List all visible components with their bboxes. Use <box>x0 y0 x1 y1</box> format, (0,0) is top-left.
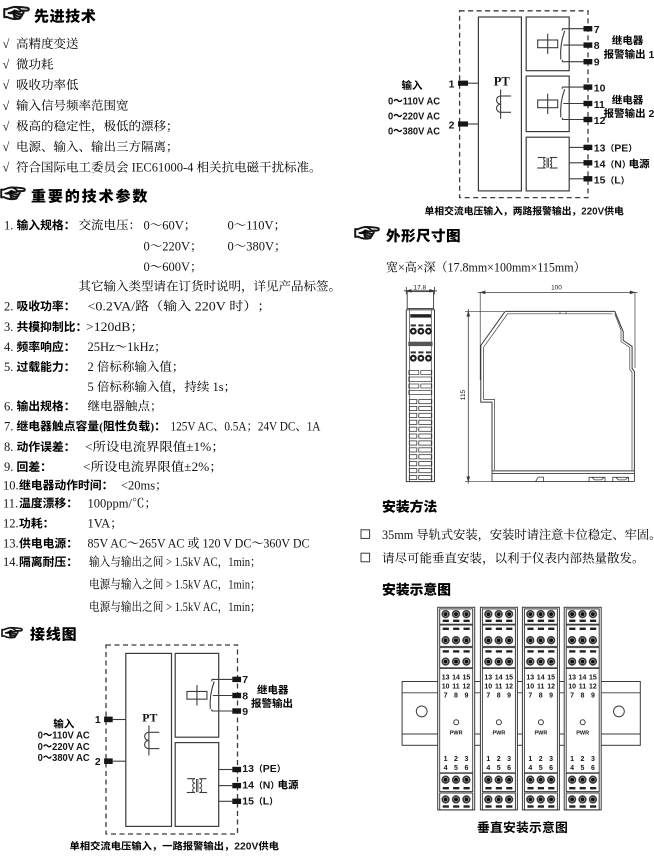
svg-text:3: 3 <box>591 756 595 763</box>
svg-text:√: √ <box>3 161 10 175</box>
svg-text:5.: 5. <box>4 360 13 374</box>
svg-text:5: 5 <box>581 765 585 772</box>
svg-text:N: N <box>263 780 271 792</box>
svg-text:265V AC: 265V AC <box>139 536 184 550</box>
svg-text:7: 7 <box>242 674 248 686</box>
svg-text:11: 11 <box>452 683 460 690</box>
svg-text:√: √ <box>3 37 10 51</box>
svg-text:25Hz: 25Hz <box>88 340 116 354</box>
svg-text:1: 1 <box>570 756 574 763</box>
svg-text:1: 1 <box>649 49 654 61</box>
svg-text:85V AC: 85V AC <box>88 536 127 550</box>
svg-text:8: 8 <box>594 40 600 52</box>
svg-text:<: < <box>83 459 91 473</box>
svg-text:11: 11 <box>594 99 605 111</box>
svg-text:5: 5 <box>539 765 543 772</box>
svg-text:14: 14 <box>579 674 587 681</box>
svg-text:10: 10 <box>484 683 492 690</box>
svg-text:3.: 3. <box>4 320 13 334</box>
svg-text:3: 3 <box>549 756 553 763</box>
svg-text:4: 4 <box>528 765 532 772</box>
svg-text:4.: 4. <box>4 340 13 354</box>
svg-text:14: 14 <box>495 674 503 681</box>
svg-text:7: 7 <box>528 692 532 699</box>
svg-text:9.: 9. <box>4 460 13 474</box>
svg-text:0: 0 <box>144 239 150 253</box>
svg-text:2.: 2. <box>4 299 13 313</box>
svg-text:9: 9 <box>464 692 468 699</box>
svg-text:220V: 220V <box>162 239 190 253</box>
svg-text:100ppm/: 100ppm/ <box>88 496 133 510</box>
svg-text:1min: 1min <box>228 600 250 614</box>
svg-text:380V AC: 380V AC <box>403 126 441 138</box>
svg-text:60V: 60V <box>162 218 184 232</box>
svg-text:1: 1 <box>444 756 448 763</box>
svg-text:14: 14 <box>594 159 606 171</box>
svg-text:15: 15 <box>589 674 597 681</box>
svg-text:2: 2 <box>649 108 654 120</box>
svg-text:220V AC: 220V AC <box>52 741 90 753</box>
svg-text:12: 12 <box>547 683 555 690</box>
svg-text:5: 5 <box>88 380 94 394</box>
svg-text:): ) <box>150 419 154 433</box>
svg-text:13: 13 <box>594 142 606 154</box>
svg-text:6: 6 <box>507 765 511 772</box>
svg-text:10: 10 <box>442 683 450 690</box>
svg-text:1min: 1min <box>228 555 250 569</box>
svg-text:11: 11 <box>579 683 587 690</box>
svg-text:2: 2 <box>581 756 585 763</box>
svg-text:0: 0 <box>144 218 150 232</box>
svg-text:1kHz: 1kHz <box>127 340 155 354</box>
svg-text:2: 2 <box>539 756 543 763</box>
svg-text:9: 9 <box>549 692 553 699</box>
svg-text:4: 4 <box>570 765 574 772</box>
svg-text:×: × <box>398 260 405 274</box>
svg-text:5: 5 <box>454 765 458 772</box>
svg-text:1: 1 <box>486 756 490 763</box>
svg-text:7: 7 <box>594 24 600 36</box>
svg-text:1VA: 1VA <box>88 517 111 531</box>
svg-text:220V: 220V <box>195 299 227 313</box>
svg-text:380V: 380V <box>246 239 274 253</box>
svg-text:380V AC: 380V AC <box>52 753 90 765</box>
svg-text:12: 12 <box>589 683 597 690</box>
svg-text:7: 7 <box>570 692 574 699</box>
svg-text:4: 4 <box>486 765 490 772</box>
svg-text:15: 15 <box>463 674 471 681</box>
svg-text:PT: PT <box>142 711 157 725</box>
svg-text:35mm: 35mm <box>382 528 414 542</box>
svg-text:0: 0 <box>388 126 394 138</box>
svg-text:14.: 14. <box>3 555 19 569</box>
svg-text:8: 8 <box>539 692 543 699</box>
svg-text:8: 8 <box>242 690 248 702</box>
svg-text:(: ( <box>99 419 103 433</box>
svg-text:7: 7 <box>486 692 490 699</box>
svg-text:13: 13 <box>568 674 576 681</box>
svg-text:13.: 13. <box>3 537 19 551</box>
svg-text:8.: 8. <box>4 440 13 454</box>
svg-text:15: 15 <box>547 674 555 681</box>
svg-text:7.: 7. <box>4 419 13 433</box>
svg-text:14: 14 <box>452 674 460 681</box>
svg-text:> 1.5kV AC: > 1.5kV AC <box>166 555 218 569</box>
svg-text:2: 2 <box>497 756 501 763</box>
svg-text:√: √ <box>3 119 10 133</box>
svg-text:14: 14 <box>537 674 545 681</box>
svg-text:IEC61000-4: IEC61000-4 <box>132 161 195 175</box>
svg-text:PE: PE <box>263 763 277 775</box>
svg-text:1s: 1s <box>213 380 224 394</box>
svg-text:5: 5 <box>497 765 501 772</box>
svg-text:1min: 1min <box>228 578 250 592</box>
svg-text:PWR: PWR <box>450 731 463 737</box>
svg-text:13: 13 <box>442 674 450 681</box>
svg-text:1: 1 <box>449 79 455 91</box>
svg-text:√: √ <box>3 99 10 113</box>
svg-text:L: L <box>614 175 621 187</box>
svg-text:600V: 600V <box>162 260 190 274</box>
svg-text:6.: 6. <box>4 399 13 413</box>
svg-text:√: √ <box>3 78 10 92</box>
svg-text:0: 0 <box>228 218 234 232</box>
svg-text:360V DC: 360V DC <box>263 536 309 550</box>
svg-text:1A: 1A <box>307 419 321 434</box>
svg-text:±1%: ±1% <box>186 439 211 453</box>
svg-text:220V: 220V <box>581 206 604 217</box>
svg-text:11: 11 <box>495 683 503 690</box>
svg-text:8: 8 <box>497 692 501 699</box>
svg-text:PWR: PWR <box>534 731 547 737</box>
svg-text:1: 1 <box>528 756 532 763</box>
svg-text:10.: 10. <box>3 478 19 492</box>
svg-text:<20ms: <20ms <box>121 478 155 492</box>
svg-text:10: 10 <box>526 683 534 690</box>
svg-text:6: 6 <box>591 765 595 772</box>
svg-text:3: 3 <box>507 756 511 763</box>
svg-text:√: √ <box>3 58 10 72</box>
svg-text:120 V DC: 120 V DC <box>202 536 251 550</box>
svg-text:9: 9 <box>594 57 600 69</box>
svg-text:<: < <box>85 439 93 453</box>
svg-text:7: 7 <box>444 692 448 699</box>
svg-text:0: 0 <box>388 111 394 123</box>
svg-text:17.8mm×100mm×115mm: 17.8mm×100mm×115mm <box>448 260 575 274</box>
svg-text:0: 0 <box>38 753 44 765</box>
svg-text:L: L <box>263 796 270 808</box>
svg-text:N: N <box>614 159 622 171</box>
svg-text:0: 0 <box>388 96 394 108</box>
svg-text:> 1.5kV AC: > 1.5kV AC <box>166 600 218 614</box>
svg-text:×: × <box>417 260 424 274</box>
svg-text:√: √ <box>3 140 10 154</box>
svg-text:13: 13 <box>484 674 492 681</box>
svg-text:9: 9 <box>591 692 595 699</box>
svg-text:0: 0 <box>228 239 234 253</box>
svg-text:PWR: PWR <box>492 731 505 737</box>
svg-text:6: 6 <box>549 765 553 772</box>
svg-text:>120dB: >120dB <box>86 320 131 334</box>
svg-text:0: 0 <box>144 260 150 274</box>
svg-text:12: 12 <box>463 683 471 690</box>
svg-text:14: 14 <box>242 780 254 792</box>
svg-text:220V AC: 220V AC <box>403 111 441 123</box>
svg-text:24V DC: 24V DC <box>258 419 296 434</box>
svg-text:110V: 110V <box>246 218 273 232</box>
svg-text:8: 8 <box>454 692 458 699</box>
svg-text:0: 0 <box>38 741 44 753</box>
svg-text:3: 3 <box>464 756 468 763</box>
svg-text:2: 2 <box>88 360 94 374</box>
svg-text:220V: 220V <box>234 842 258 853</box>
svg-text:2: 2 <box>454 756 458 763</box>
svg-text:PE: PE <box>614 142 628 154</box>
svg-text:12.: 12. <box>3 517 19 531</box>
svg-text:8: 8 <box>581 692 585 699</box>
svg-text:110V AC: 110V AC <box>403 96 440 108</box>
svg-text:PT: PT <box>494 75 511 89</box>
svg-text:1: 1 <box>95 714 101 726</box>
svg-text:PWR: PWR <box>576 731 589 737</box>
svg-text:11.: 11. <box>3 496 18 510</box>
svg-text:0.5A: 0.5A <box>224 419 247 434</box>
svg-text:10: 10 <box>568 683 576 690</box>
svg-text:12: 12 <box>505 683 513 690</box>
svg-text:9: 9 <box>507 692 511 699</box>
svg-text:±2%: ±2% <box>184 459 209 473</box>
svg-text:2: 2 <box>95 756 101 768</box>
svg-text:100: 100 <box>551 285 562 292</box>
svg-text:11: 11 <box>537 683 545 690</box>
svg-text:0: 0 <box>38 730 44 742</box>
svg-text:2: 2 <box>449 119 455 131</box>
svg-text:110V AC: 110V AC <box>52 730 89 742</box>
svg-text:13: 13 <box>242 763 254 775</box>
svg-text:125V AC: 125V AC <box>171 419 214 434</box>
svg-text:1.: 1. <box>4 218 13 232</box>
svg-text:10: 10 <box>594 83 606 95</box>
svg-text:9: 9 <box>242 706 248 718</box>
svg-text:115: 115 <box>460 389 467 400</box>
svg-text:13: 13 <box>526 674 534 681</box>
svg-text:15: 15 <box>505 674 513 681</box>
svg-text:15: 15 <box>242 796 254 808</box>
svg-text:15: 15 <box>594 175 606 187</box>
svg-text:4: 4 <box>444 765 448 772</box>
svg-text:<0.2VA/: <0.2VA/ <box>88 299 136 313</box>
svg-text:12: 12 <box>594 115 606 127</box>
svg-text:> 1.5kV AC: > 1.5kV AC <box>166 578 218 592</box>
svg-text:6: 6 <box>464 765 468 772</box>
